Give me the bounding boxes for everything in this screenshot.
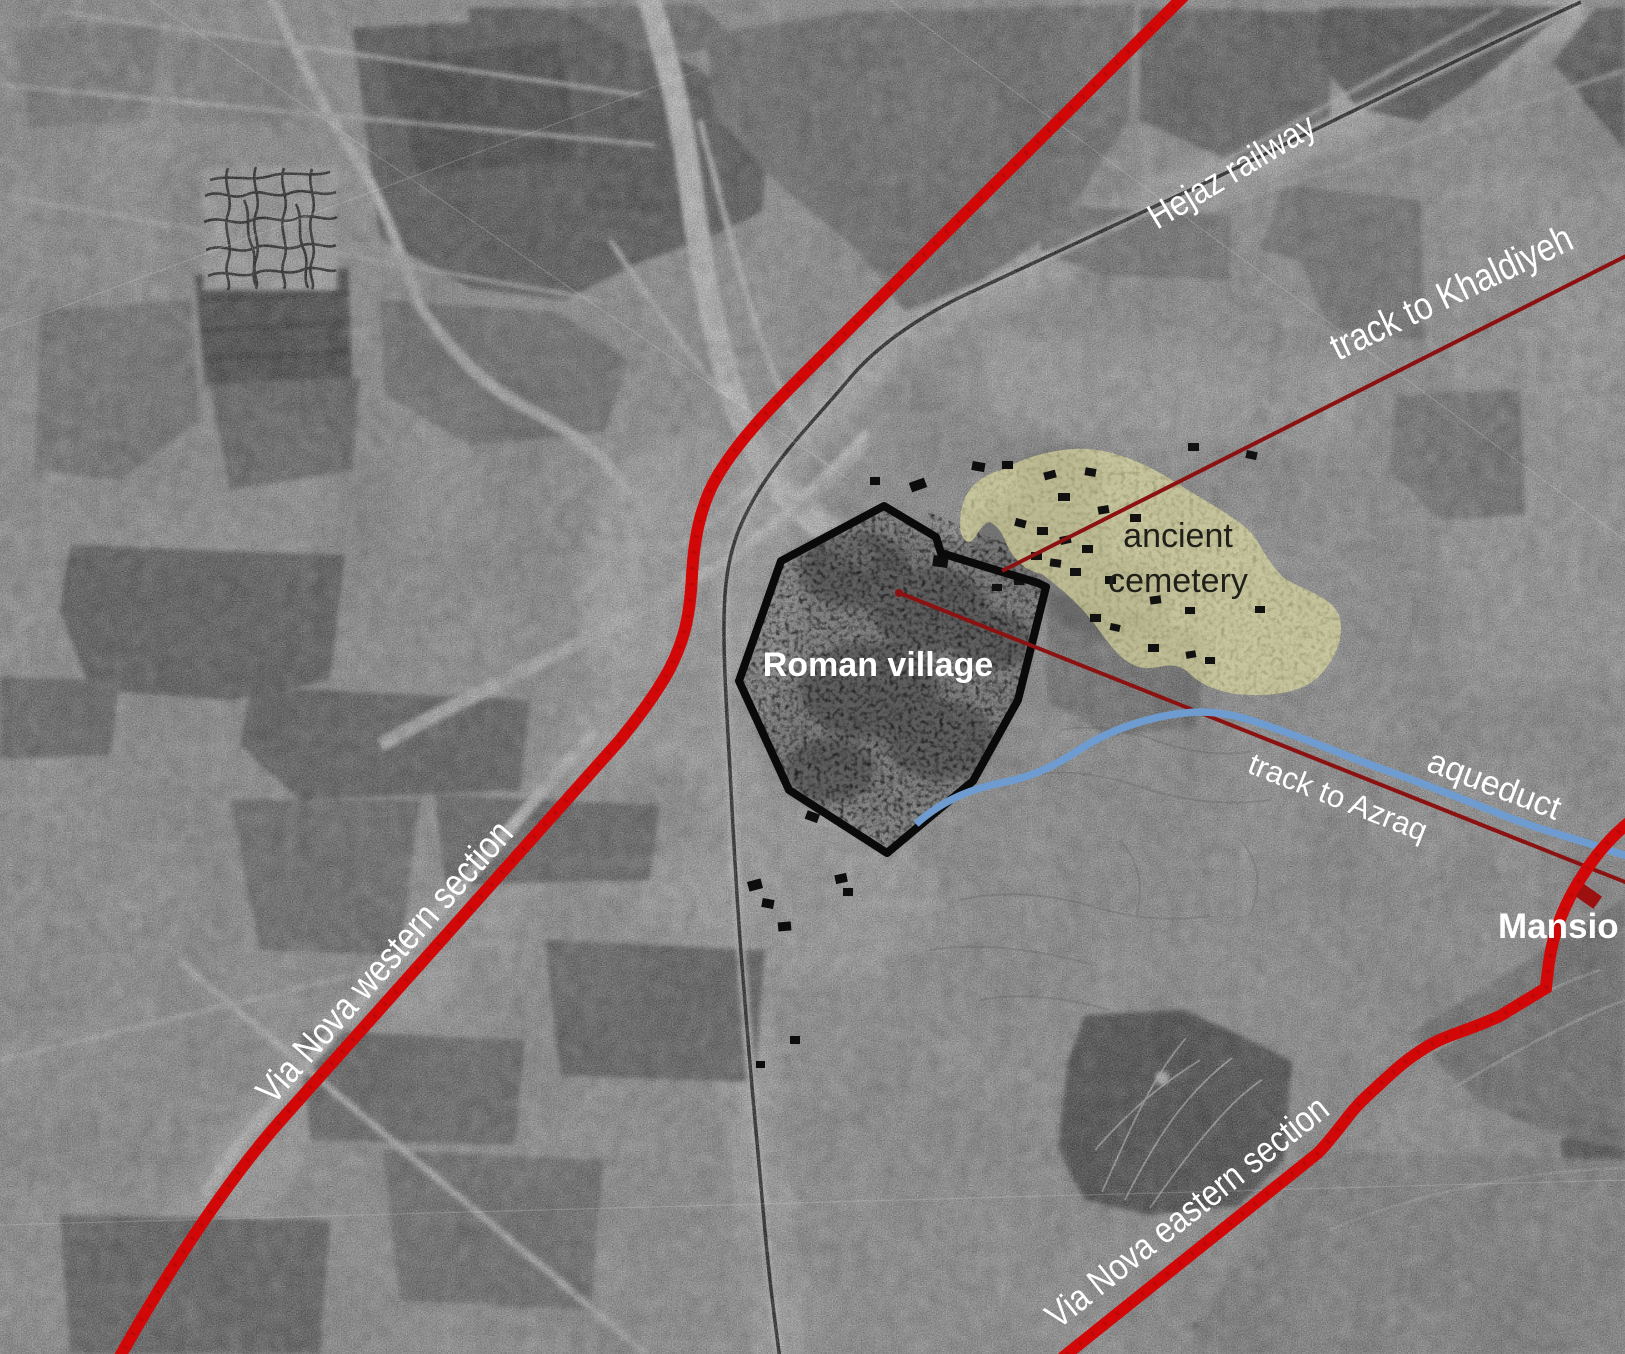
svg-text:cemetery: cemetery xyxy=(1108,562,1248,600)
svg-text:ancient: ancient xyxy=(1123,517,1233,555)
svg-text:Mansio: Mansio xyxy=(1498,907,1619,946)
svg-text:Roman village: Roman village xyxy=(763,646,994,684)
